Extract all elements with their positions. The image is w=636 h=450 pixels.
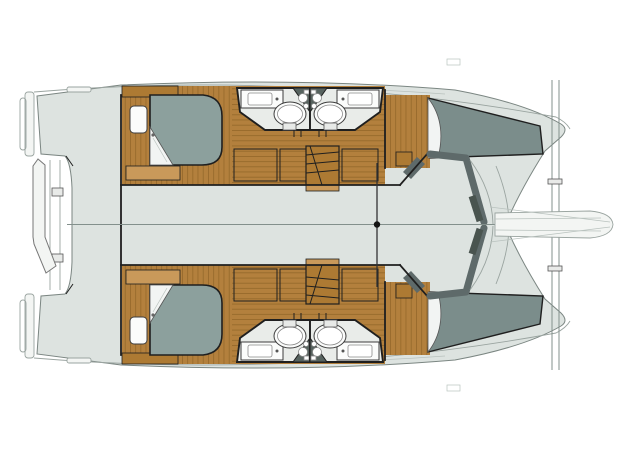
step-cabinet [396,152,412,166]
shower-drain [283,123,296,130]
gunwale-step [67,87,91,92]
sink-basin [348,93,372,105]
shower-drain [324,123,337,130]
toilet-bowl [313,94,322,103]
foot-locker [126,166,180,180]
faucet [342,98,345,101]
stern-davit [33,159,56,273]
sink-basin [248,93,272,105]
bedside-unit [130,106,147,133]
beam-fitting [548,179,562,184]
davit-clamp [52,188,63,196]
mast-node [374,221,380,227]
beam-fitting [548,266,562,271]
faucet [276,98,279,101]
berth-fitting [151,133,154,136]
mast-fitting [447,59,460,65]
toilet-bowl [299,94,308,103]
floor-plan-page [0,0,636,450]
catamaran-floor-plan [0,0,636,450]
